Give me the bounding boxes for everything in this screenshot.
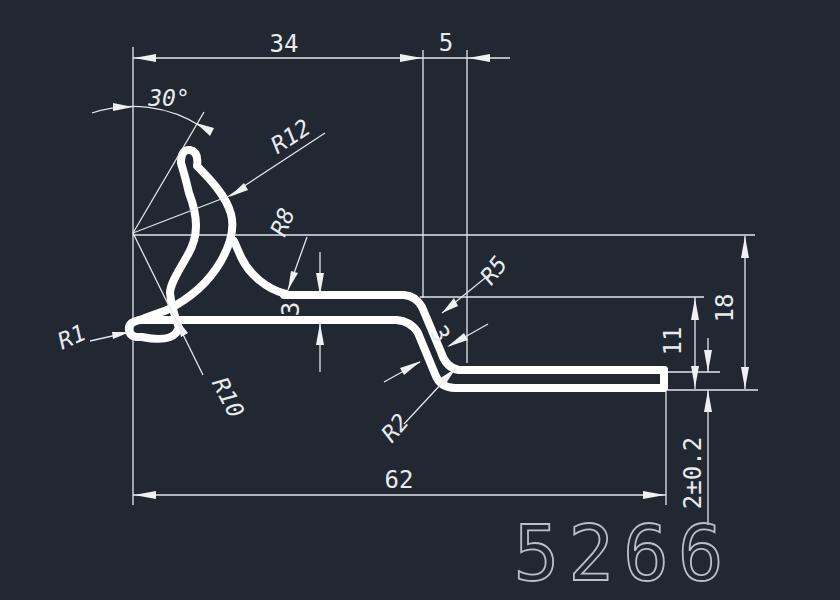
dim-r12-label: R12 xyxy=(266,114,315,158)
dim-total-height-label: 18 xyxy=(711,294,739,323)
dim-web-thickness-label: 3 xyxy=(277,302,305,316)
extension-lines xyxy=(133,47,758,505)
dim-top-width-label: 34 xyxy=(270,30,299,58)
dim-top-offset-label: 5 xyxy=(439,29,453,57)
dimension-lines xyxy=(90,54,749,525)
profile-outline xyxy=(129,150,664,388)
part-number: 5266 xyxy=(513,509,732,598)
dim-total-width-label: 62 xyxy=(385,466,414,494)
dim-angle-label: 30° xyxy=(147,85,190,111)
cad-drawing-canvas[interactable]: 34 5 30° 62 R12 R8 R5 R1 R10 R2 3 3 18 1… xyxy=(0,0,840,600)
profile-curl xyxy=(129,150,232,339)
dim-flange-thickness-label: 2±0.2 xyxy=(679,437,707,509)
dim-r2-label: R2 xyxy=(376,409,414,447)
dim-r1-label: R1 xyxy=(54,319,90,354)
profile-drawing: 34 5 30° 62 R12 R8 R5 R1 R10 R2 3 3 18 1… xyxy=(0,0,840,600)
dim-step-height-label: 11 xyxy=(659,327,687,356)
profile-bowl xyxy=(234,241,286,294)
dimension-labels: 34 5 30° 62 R12 R8 R5 R1 R10 R2 3 3 18 1… xyxy=(54,29,739,509)
dim-r5-label: R5 xyxy=(475,251,513,289)
dim-r10-label: R10 xyxy=(207,373,249,422)
